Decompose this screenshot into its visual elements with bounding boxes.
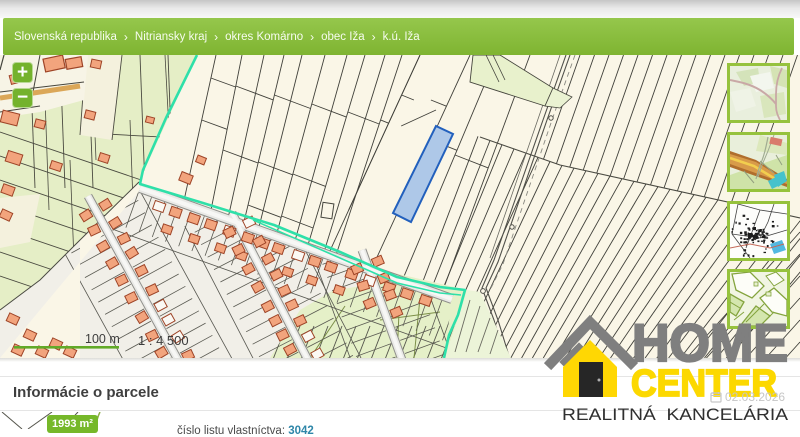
svg-text:100 m: 100 m (85, 332, 120, 346)
svg-text:1 : 4 500: 1 : 4 500 (138, 333, 189, 348)
svg-text:REALITNÁ KANCELÁRIA: REALITNÁ KANCELÁRIA (562, 405, 789, 424)
